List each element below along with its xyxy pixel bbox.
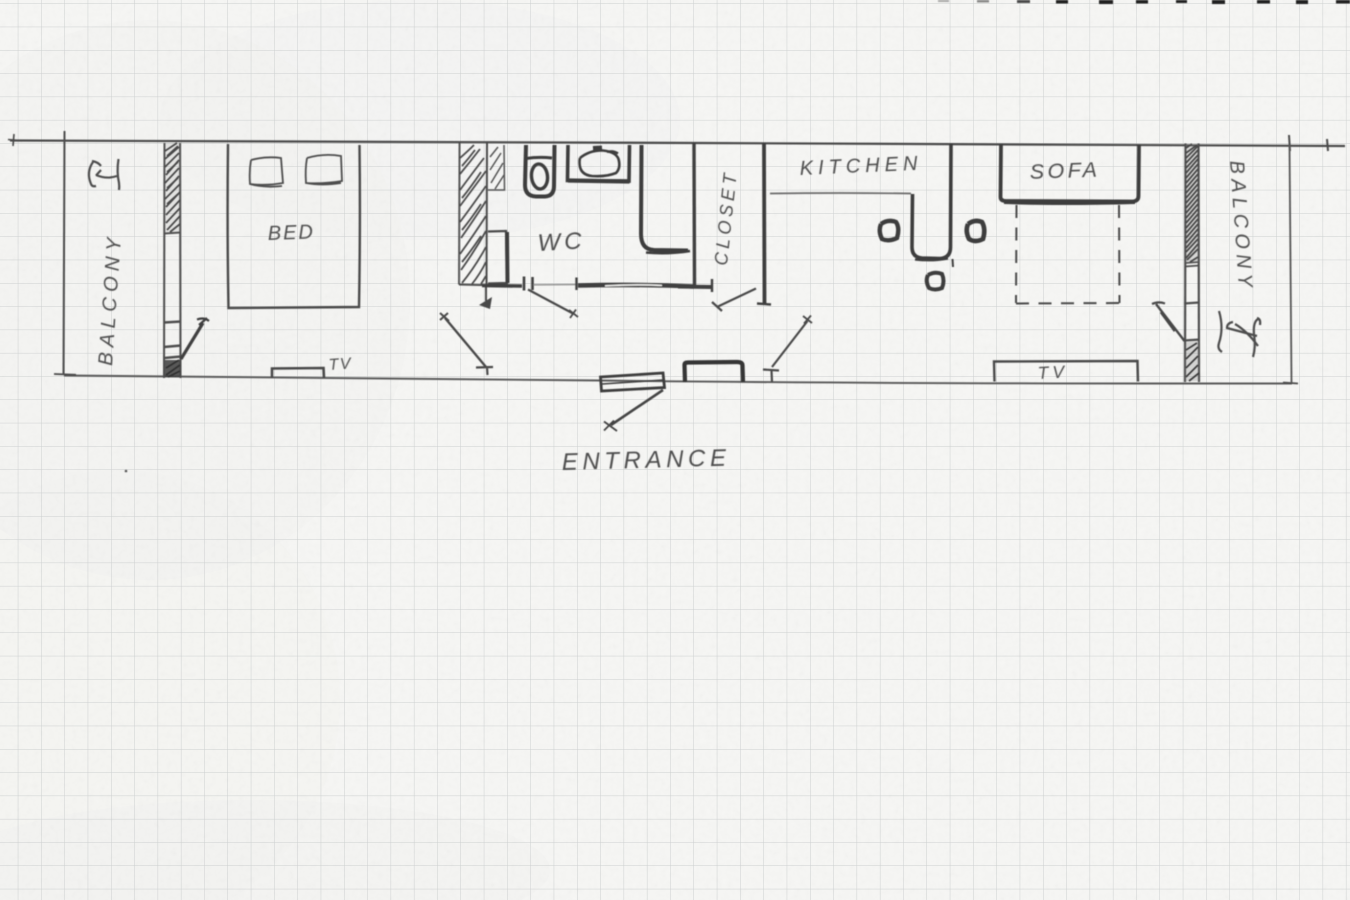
svg-text:BED: BED — [267, 221, 315, 245]
svg-text:TV: TV — [1037, 361, 1068, 383]
svg-text:TV: TV — [328, 355, 353, 374]
svg-text:WC: WC — [537, 228, 586, 257]
svg-text:ENTRANCE: ENTRANCE — [561, 445, 730, 476]
svg-text:SOFA: SOFA — [1029, 158, 1100, 184]
